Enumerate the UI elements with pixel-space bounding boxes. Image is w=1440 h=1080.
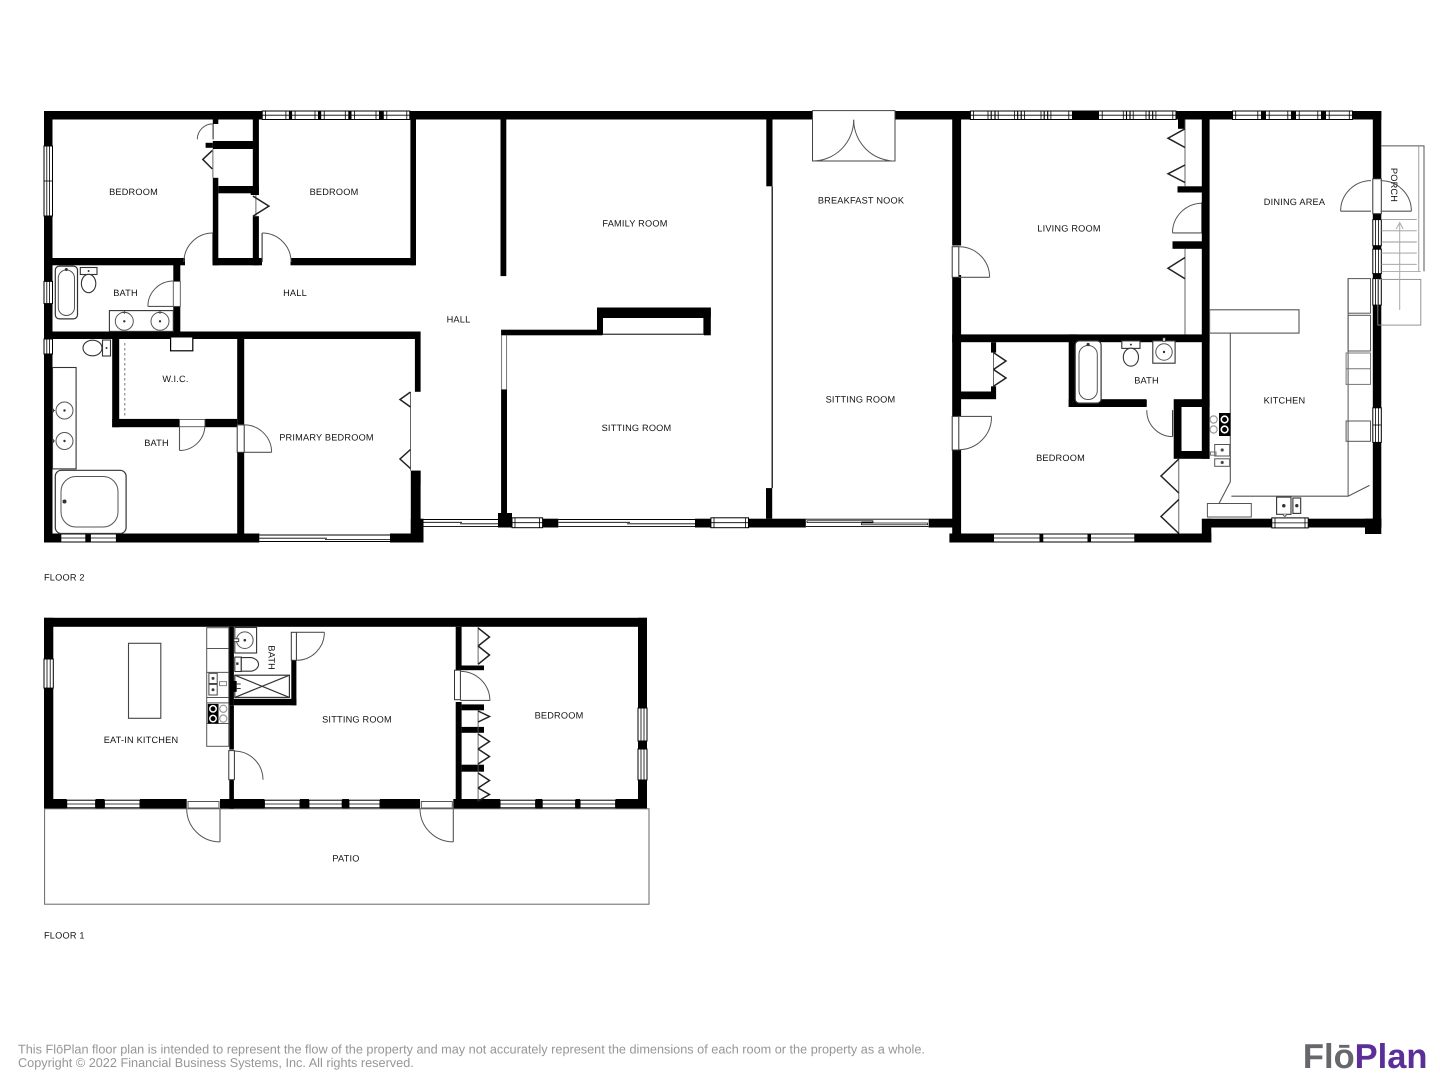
svg-text:HALL: HALL [447, 315, 471, 325]
svg-text:SITTING ROOM: SITTING ROOM [826, 395, 896, 405]
svg-text:BEDROOM: BEDROOM [535, 711, 584, 721]
svg-text:BEDROOM: BEDROOM [109, 187, 158, 197]
svg-text:BATH: BATH [113, 288, 138, 298]
svg-text:PRIMARY BEDROOM: PRIMARY BEDROOM [279, 433, 374, 443]
svg-text:FlōPlan: FlōPlan [1303, 1038, 1428, 1076]
svg-text:FLOOR 2: FLOOR 2 [44, 573, 85, 583]
svg-text:BEDROOM: BEDROOM [1036, 453, 1085, 463]
svg-text:HALL: HALL [283, 288, 307, 298]
svg-text:SITTING ROOM: SITTING ROOM [322, 715, 392, 725]
svg-text:W.I.C.: W.I.C. [162, 374, 188, 384]
svg-text:FAMILY ROOM: FAMILY ROOM [602, 219, 667, 229]
svg-text:BREAKFAST NOOK: BREAKFAST NOOK [818, 196, 905, 206]
svg-text:Copyright © 2022 Financial Bus: Copyright © 2022 Financial Business Syst… [18, 1056, 414, 1070]
svg-text:EAT-IN KITCHEN: EAT-IN KITCHEN [104, 735, 179, 745]
svg-text:PATIO: PATIO [332, 854, 359, 864]
svg-text:BEDROOM: BEDROOM [310, 187, 359, 197]
svg-text:PORCH: PORCH [1389, 168, 1399, 202]
svg-text:BATH: BATH [1134, 376, 1159, 386]
svg-text:FLOOR 1: FLOOR 1 [44, 931, 85, 941]
svg-text:DINING AREA: DINING AREA [1264, 197, 1326, 207]
svg-text:BATH: BATH [144, 438, 169, 448]
svg-text:LIVING ROOM: LIVING ROOM [1037, 224, 1100, 234]
svg-text:KITCHEN: KITCHEN [1264, 396, 1306, 406]
svg-text:This FlōPlan floor plan is int: This FlōPlan floor plan is intended to r… [18, 1042, 925, 1056]
svg-text:SITTING ROOM: SITTING ROOM [602, 423, 672, 433]
svg-text:BATH: BATH [266, 645, 276, 670]
